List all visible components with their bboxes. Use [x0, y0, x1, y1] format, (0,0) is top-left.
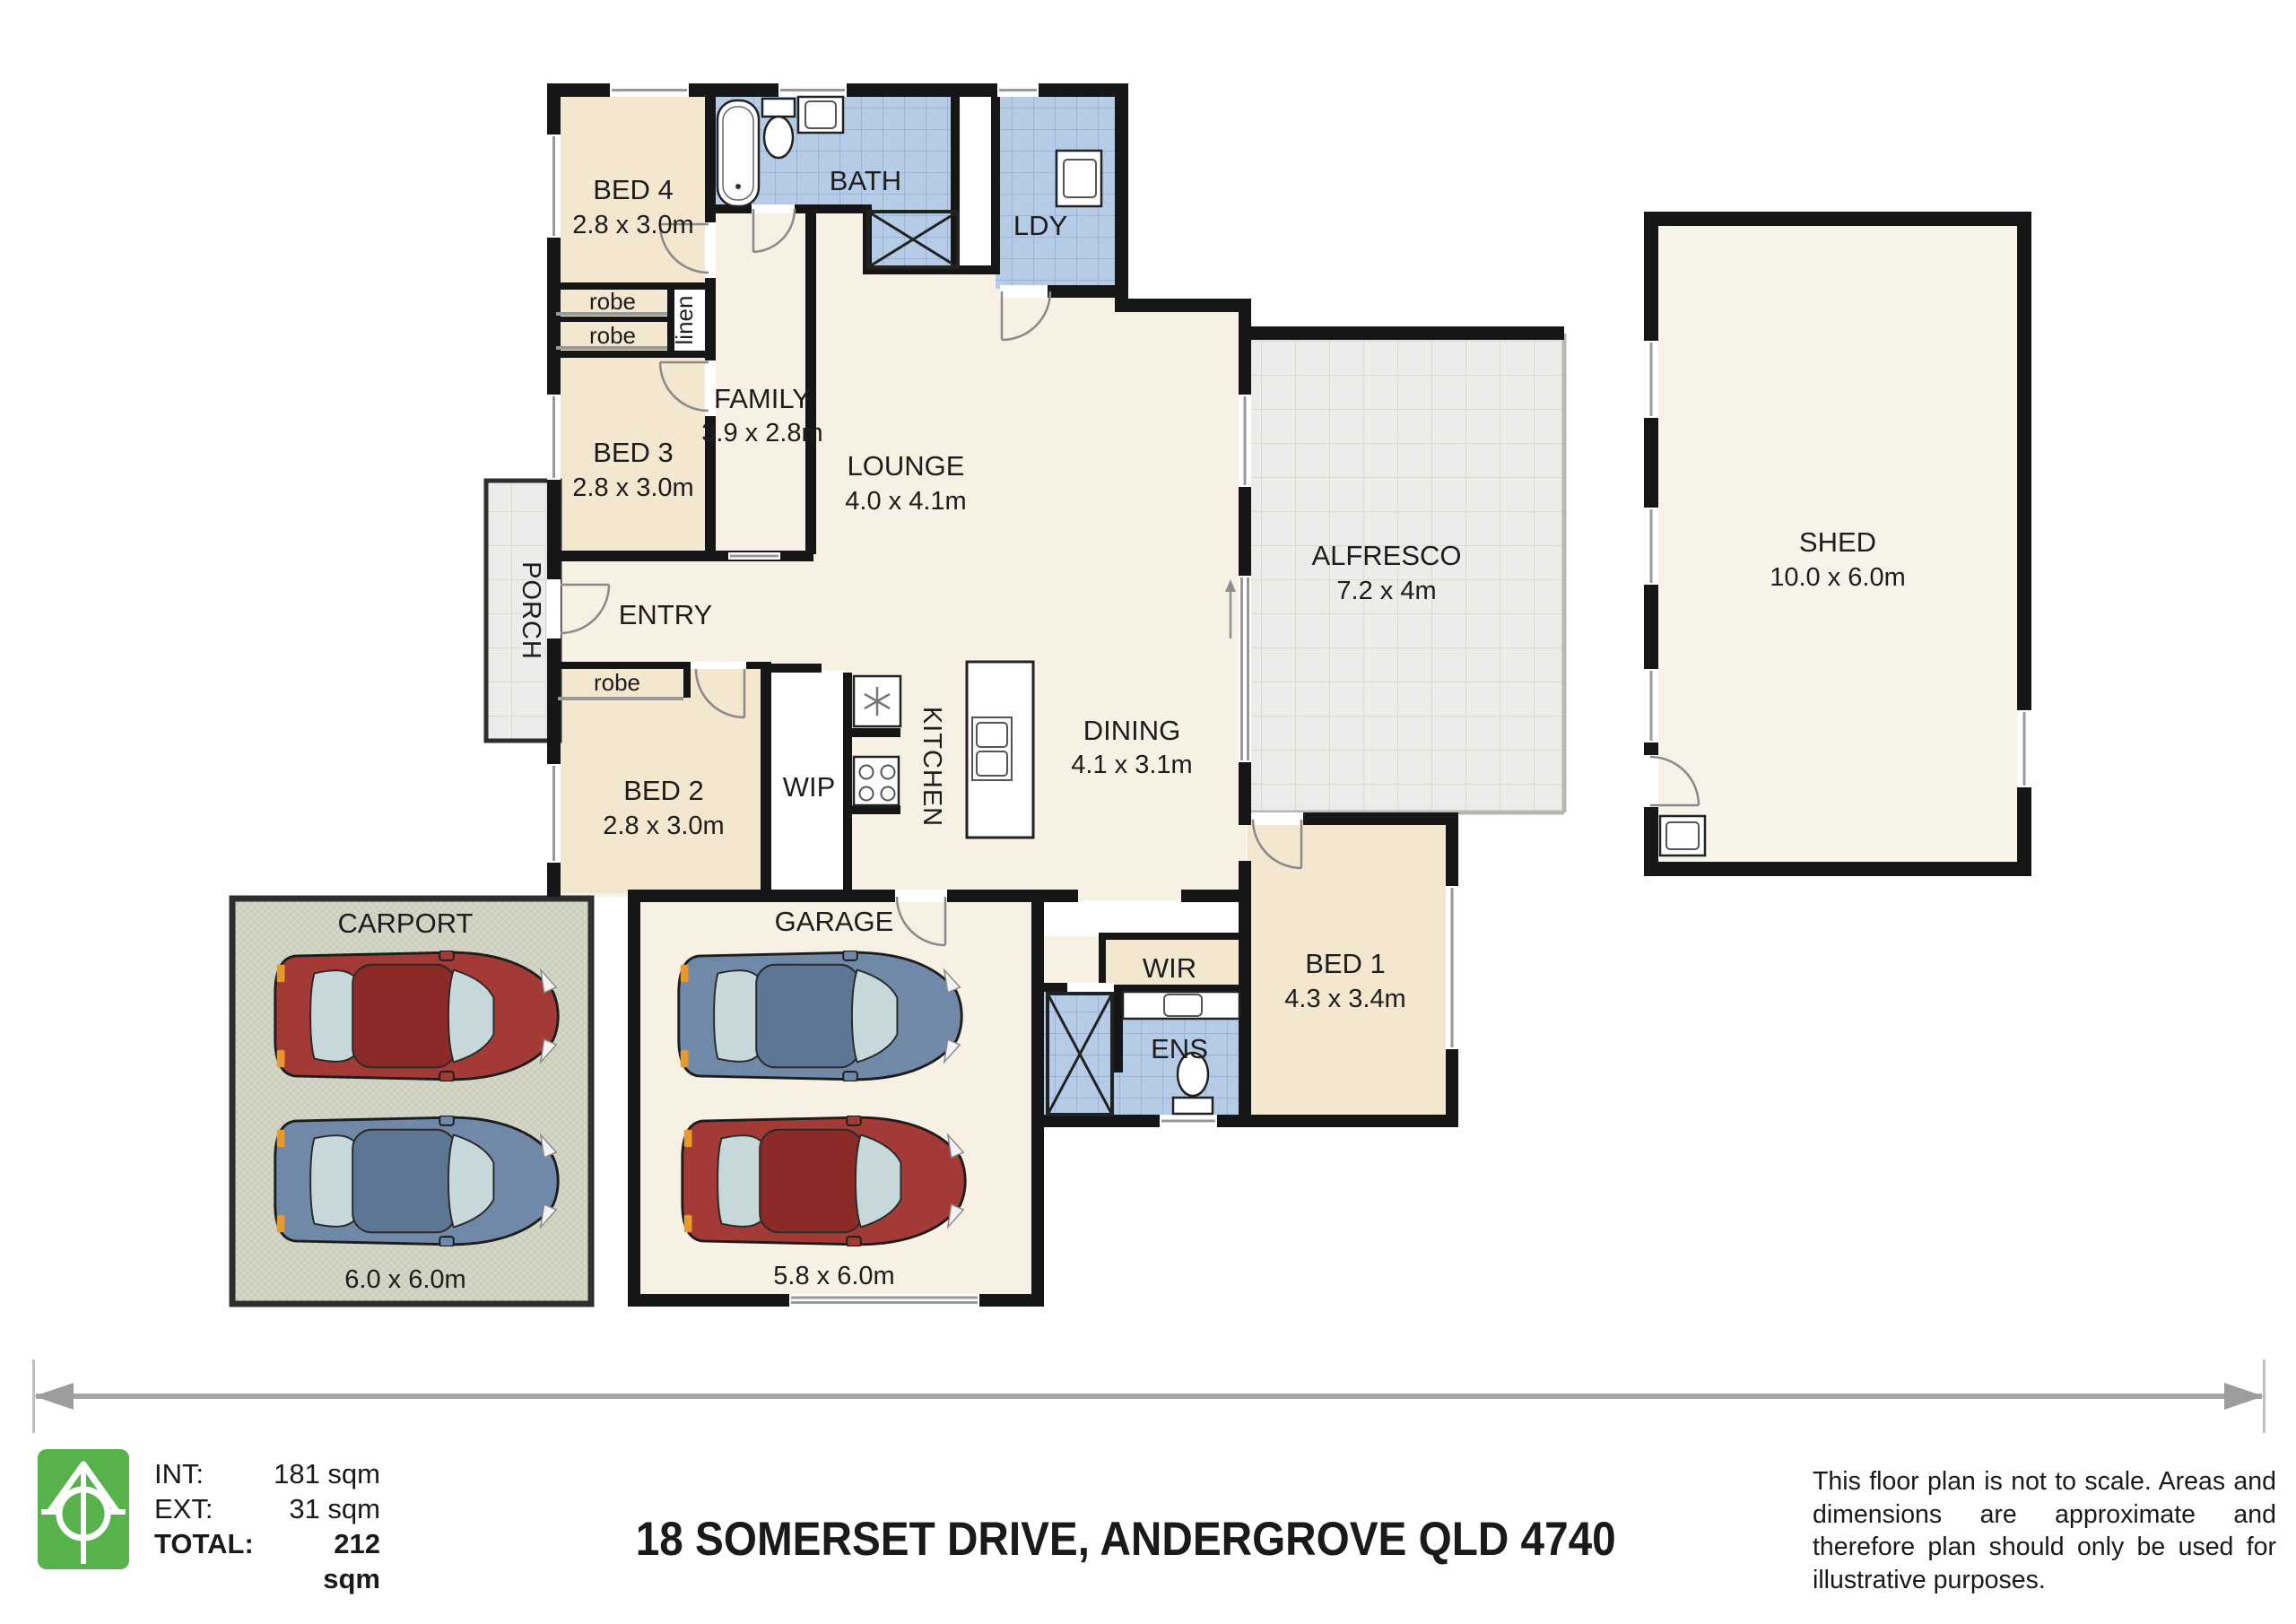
- wip-label: WIP: [783, 771, 836, 803]
- int-label: INT:: [154, 1456, 273, 1491]
- ens-vanity-sink: [1123, 992, 1239, 1019]
- bath-label: BATH: [830, 165, 901, 196]
- kitchen-island: [967, 662, 1033, 838]
- floor-plan-drawing: BED 4 2.8 x 3.0m BATH LDY robe robe line…: [0, 0, 2296, 1624]
- porch-label: PORCH: [517, 561, 545, 660]
- robe-label-1: robe: [589, 288, 636, 315]
- kitchen-label: KITCHEN: [918, 707, 946, 827]
- garage-label: GARAGE: [775, 906, 894, 937]
- bed3-dims: 2.8 x 3.0m: [572, 473, 693, 502]
- lounge-label: LOUNGE: [848, 450, 965, 482]
- ext-label: EXT:: [154, 1491, 273, 1526]
- carport-label: CARPORT: [337, 908, 473, 939]
- laundry-tub: [1057, 151, 1101, 206]
- lounge-floor: [1115, 306, 1246, 897]
- bed4-dims: 2.8 x 3.0m: [572, 211, 693, 239]
- bed3-label: BED 3: [593, 437, 674, 468]
- garage-car-red: [683, 1116, 965, 1246]
- bed1-dims: 4.3 x 3.4m: [1284, 985, 1405, 1013]
- area-row-ext: EXT: 31 sqm: [154, 1491, 380, 1526]
- wir-label: WIR: [1143, 952, 1196, 984]
- floor-plan-page: BED 4 2.8 x 3.0m BATH LDY robe robe line…: [0, 0, 2296, 1624]
- garage-car-blue: [679, 951, 961, 1081]
- carport-dims: 6.0 x 6.0m: [344, 1265, 465, 1294]
- toilet: [762, 99, 795, 158]
- hallway-floor: [1044, 900, 1241, 936]
- disclaimer-text: This floor plan is not to scale. Areas a…: [1813, 1465, 2276, 1596]
- alfresco-dims: 7.2 x 4m: [1336, 577, 1436, 605]
- bed4-label: BED 4: [593, 174, 674, 205]
- family-dims: 3.9 x 2.8m: [701, 419, 822, 447]
- linen-label: linen: [671, 296, 698, 345]
- family-label: FAMILY: [714, 383, 811, 414]
- agency-logo-icon: [38, 1449, 129, 1569]
- arrow-left-icon: [34, 1383, 74, 1410]
- cupboard-floor: [954, 90, 994, 269]
- cooktop: [854, 757, 899, 805]
- bed2-dims: 2.8 x 3.0m: [603, 812, 724, 840]
- ext-value: 31 sqm: [273, 1491, 380, 1526]
- lounge-dims: 4.0 x 4.1m: [845, 487, 966, 516]
- dining-label: DINING: [1083, 715, 1181, 746]
- total-value: 212 sqm: [273, 1526, 380, 1596]
- boundary-dimension-line: [32, 1359, 2266, 1433]
- shed-label: SHED: [1799, 526, 1876, 558]
- pantry-unit: [854, 676, 900, 726]
- bed1-label: BED 1: [1305, 948, 1386, 979]
- shed-dims: 10.0 x 6.0m: [1770, 563, 1906, 592]
- property-address: 18 SOMERSET DRIVE, ANDERGROVE QLD 4740: [448, 1512, 1803, 1567]
- bath-vanity-sink: [798, 97, 843, 133]
- total-label: TOTAL:: [154, 1526, 273, 1596]
- ens-label: ENS: [1151, 1033, 1208, 1064]
- bed2-label: BED 2: [623, 775, 704, 806]
- carport-car-blue: [275, 1116, 558, 1246]
- area-row-int: INT: 181 sqm: [154, 1456, 380, 1491]
- bathtub: [717, 100, 759, 206]
- int-value: 181 sqm: [273, 1456, 380, 1491]
- entry-label: ENTRY: [619, 599, 713, 630]
- garage-dims: 5.8 x 6.0m: [773, 1262, 894, 1290]
- robe-label-2: robe: [589, 322, 636, 349]
- area-row-total: TOTAL: 212 sqm: [154, 1526, 380, 1596]
- alfresco-floor: [1247, 334, 1562, 812]
- ldy-label: LDY: [1013, 210, 1067, 241]
- dining-dims: 4.1 x 3.1m: [1071, 751, 1192, 779]
- shed-sink: [1660, 816, 1705, 855]
- carport-car-red: [275, 951, 558, 1081]
- robe-label-3: robe: [594, 669, 640, 696]
- area-summary: INT: 181 sqm EXT: 31 sqm TOTAL: 212 sqm: [154, 1456, 380, 1596]
- arrow-right-icon: [2224, 1383, 2264, 1410]
- alfresco-label: ALFRESCO: [1311, 540, 1461, 571]
